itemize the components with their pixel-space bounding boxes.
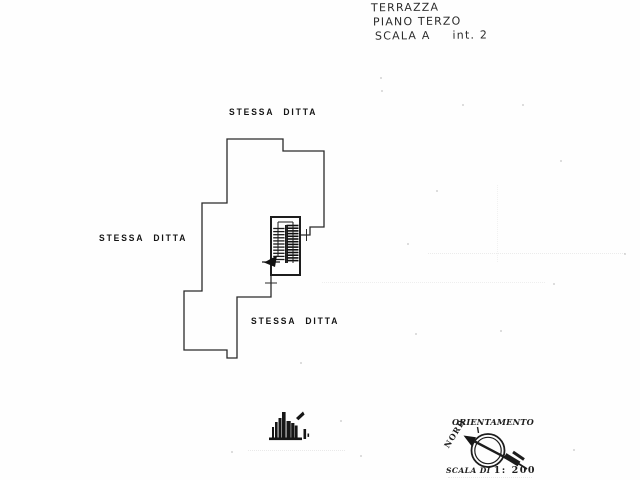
scanned-floor-plan-page: TERRAZZA PIANO TERZO SCALA Aint. 2 STESS…: [0, 0, 640, 480]
north-compass-icon: [464, 427, 528, 469]
scale-prefix: SCALA DI: [446, 466, 491, 475]
label-stessa-ditta-left: STESSA DITTA: [99, 233, 187, 244]
ink-stamp-mark: [269, 412, 309, 441]
note-scala-int: SCALA Aint. 2: [375, 28, 488, 42]
floor-plan-drawing: [0, 0, 640, 480]
label-stessa-ditta-top: STESSA DITTA: [229, 107, 317, 118]
label-stessa-ditta-bottom: STESSA DITTA: [251, 316, 339, 327]
note-scala: SCALA A: [375, 29, 431, 43]
scale-value: 1: 200: [494, 465, 536, 476]
note-piano-terzo: PIANO TERZO: [373, 15, 462, 29]
scale-label: SCALA DI 1: 200: [446, 465, 536, 476]
staircase: [262, 217, 307, 283]
note-terrazza: TERRAZZA: [371, 1, 439, 15]
note-interno: int. 2: [452, 28, 488, 41]
